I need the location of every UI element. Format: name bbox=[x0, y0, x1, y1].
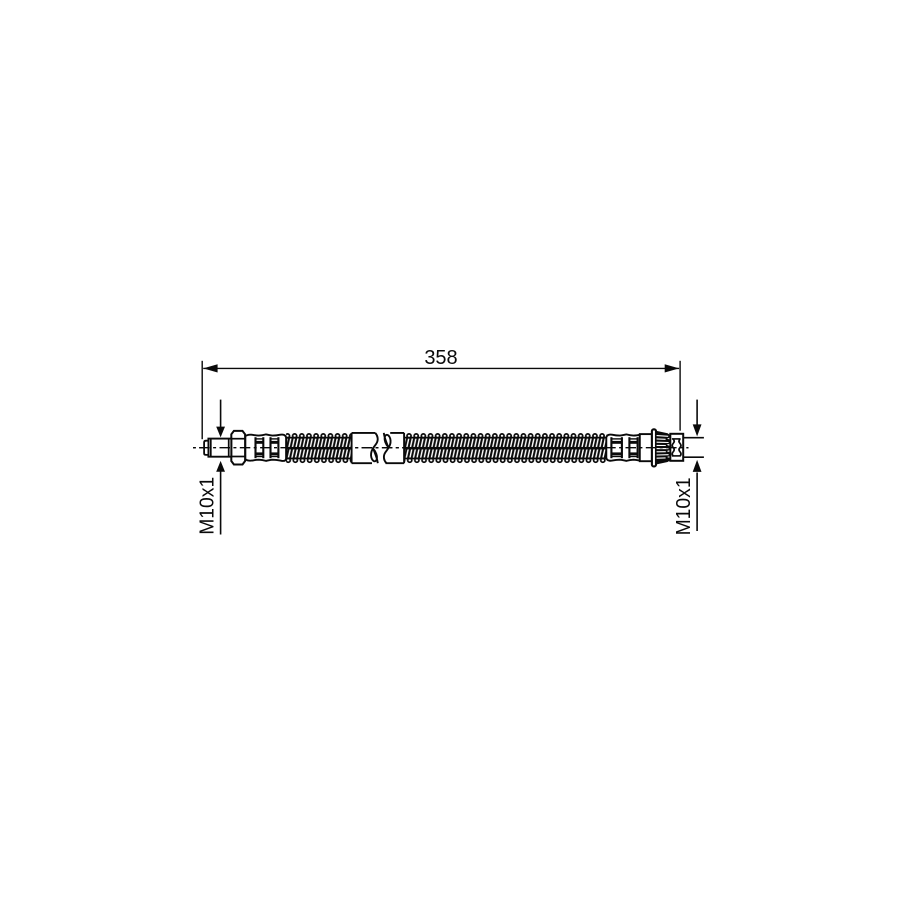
svg-text:M10x1: M10x1 bbox=[673, 477, 695, 535]
svg-text:358: 358 bbox=[424, 347, 457, 369]
svg-text:M10x1: M10x1 bbox=[196, 477, 218, 535]
